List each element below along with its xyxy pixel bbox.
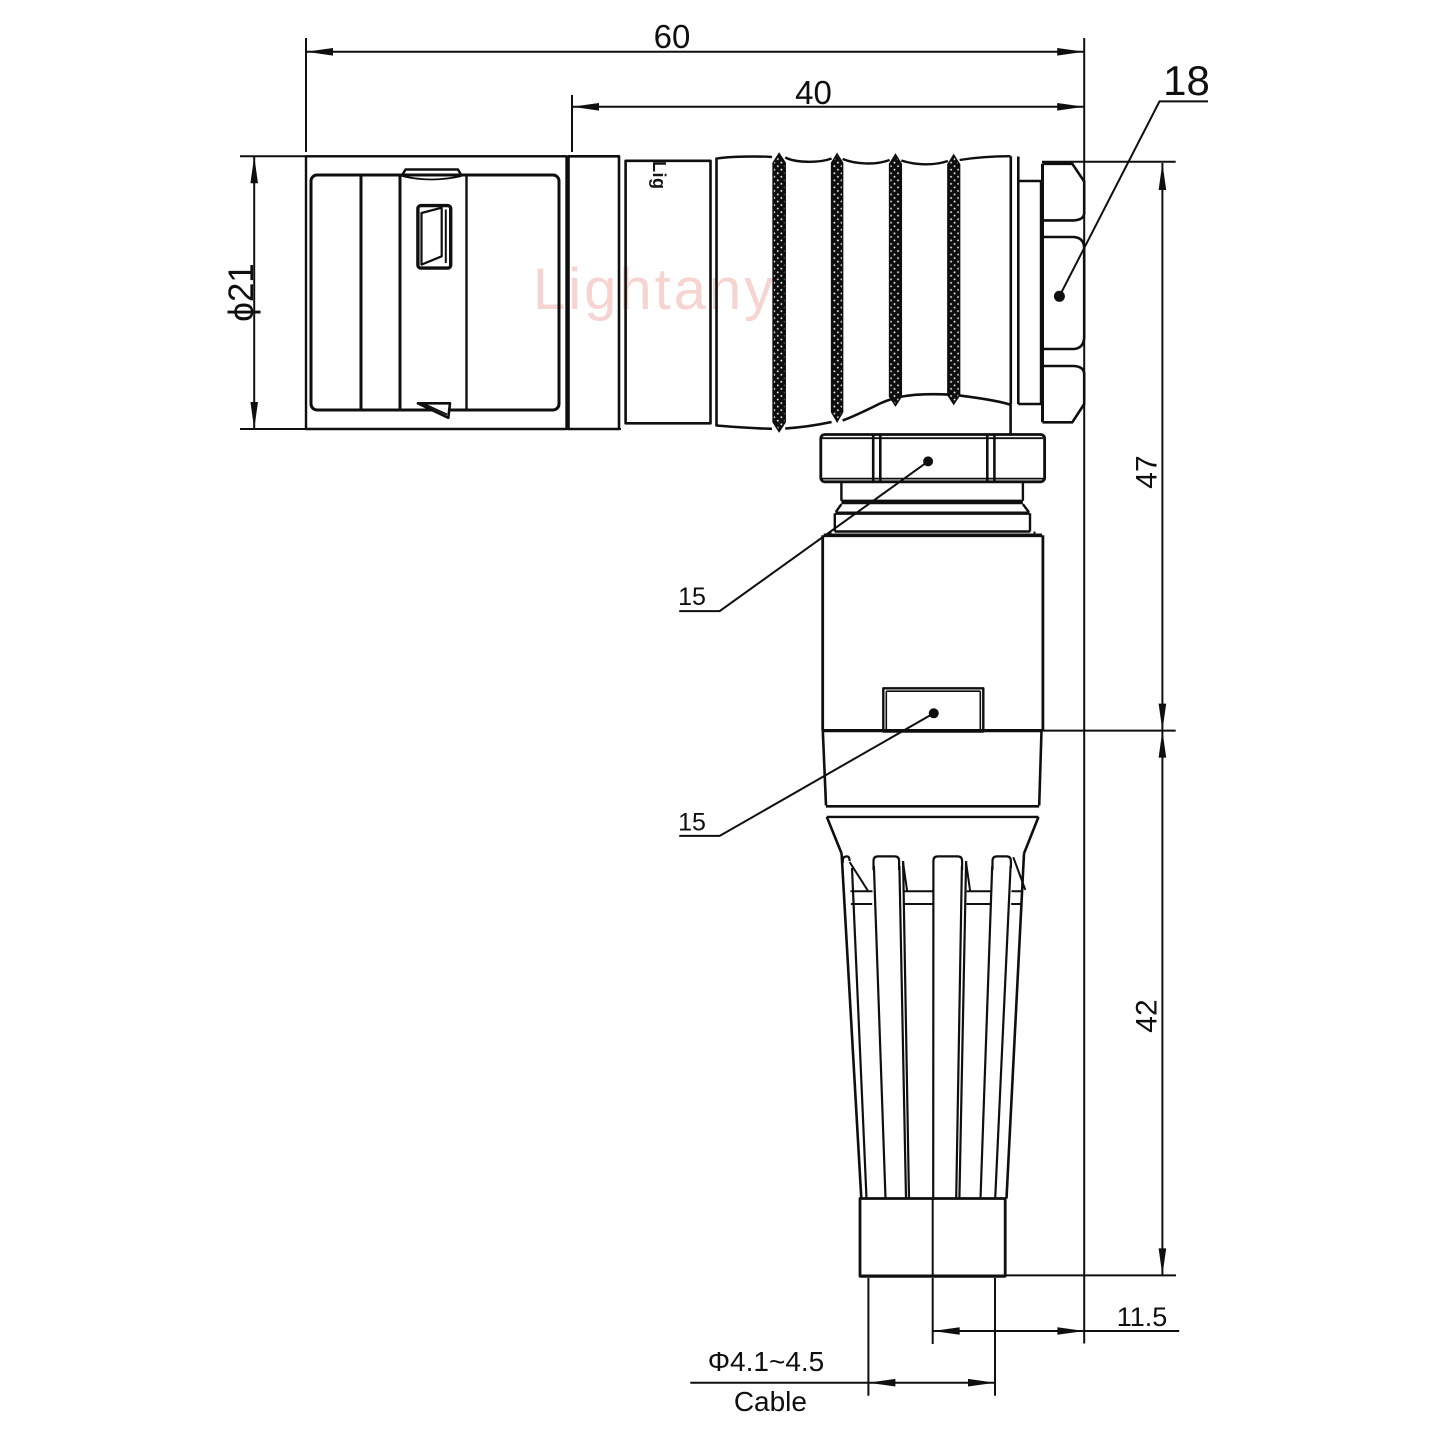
svg-text:Φ4.1~4.5: Φ4.1~4.5 xyxy=(708,1346,825,1377)
svg-text:ϕ21: ϕ21 xyxy=(222,263,261,322)
svg-text:47: 47 xyxy=(1131,455,1164,488)
svg-text:18: 18 xyxy=(1163,57,1210,104)
svg-text:15: 15 xyxy=(678,809,706,837)
svg-text:40: 40 xyxy=(795,74,832,111)
svg-text:42: 42 xyxy=(1131,999,1164,1032)
svg-text:Cable: Cable xyxy=(734,1386,807,1417)
svg-text:11.5: 11.5 xyxy=(1117,1302,1168,1332)
svg-text:Lig: Lig xyxy=(649,161,669,190)
svg-text:15: 15 xyxy=(678,583,706,611)
svg-text:60: 60 xyxy=(654,18,691,55)
